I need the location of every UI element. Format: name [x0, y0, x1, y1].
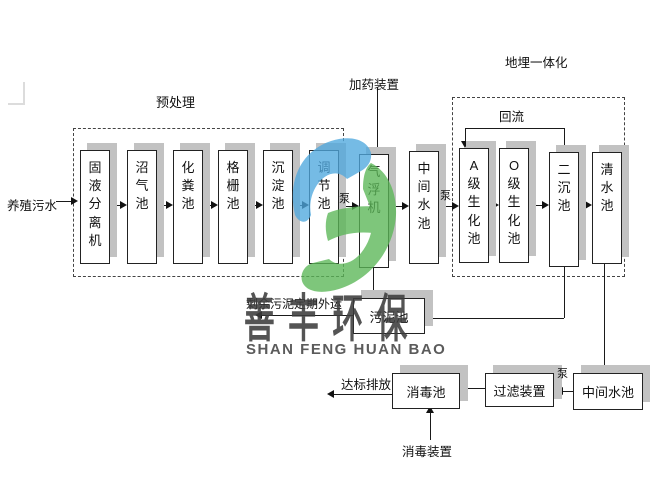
box-biogas-pool: 沼气池 [127, 150, 157, 264]
box-label: 过滤装置 [493, 381, 545, 400]
arrow-head [585, 201, 592, 209]
flow-line [467, 388, 485, 389]
box-label: 沉淀池 [271, 159, 286, 214]
box-o-level-bio-pool: O级生化池 [499, 148, 529, 263]
arrow-head [492, 201, 499, 209]
box-septic-pool: 化粪池 [173, 150, 203, 264]
flow-line [604, 263, 605, 366]
arrow-head [556, 387, 563, 395]
flow-line [338, 206, 352, 207]
box-label: 固液分离机 [88, 159, 103, 250]
disinfection-device-label: 消毒装置 [402, 441, 452, 460]
box-label: 中间水池 [417, 160, 432, 233]
arrow-head [600, 366, 608, 373]
box-label: A级生化池 [467, 157, 482, 248]
flow-line [438, 206, 452, 207]
flow-line [564, 266, 565, 318]
arrow-head [327, 390, 334, 398]
flow-line [56, 201, 71, 202]
box-label: 污泥池 [369, 307, 408, 326]
box-grille-pool: 格栅池 [218, 150, 248, 264]
pump-label-3: 泵 [557, 365, 568, 381]
buried-integration-label: 地埋一体化 [505, 52, 568, 71]
flow-line [563, 391, 573, 392]
flow-line [430, 413, 431, 440]
box-label: 清水池 [600, 161, 615, 216]
arrow-head [402, 202, 409, 210]
box-regulating-pool: 调节池 [309, 150, 339, 264]
box-air-flotation-machine: 气浮机 [359, 154, 389, 268]
flow-line [388, 206, 402, 207]
arrow-head [71, 197, 78, 205]
sludge-note-label: 剩余污泥定期外运 [246, 295, 342, 312]
arrow-head [255, 311, 262, 319]
flow-line [528, 205, 542, 206]
flow-line [564, 128, 565, 152]
flow-line [373, 267, 374, 291]
flow-line [202, 205, 211, 206]
flow-line [262, 315, 353, 316]
pump-label-1: 泵 [339, 190, 350, 206]
box-label: O级生化池 [507, 157, 522, 248]
pump-label-2: 泵 [440, 187, 451, 203]
arrow-head [120, 201, 127, 209]
box-solid-liquid-separator: 固液分离机 [80, 150, 110, 264]
box-label: 化粪池 [181, 159, 196, 214]
watermark-en-text: SHAN FENG HUAN BAO [246, 341, 446, 358]
box-label: 二沉池 [557, 161, 572, 216]
pretreatment-label: 预处理 [156, 92, 195, 111]
flow-line [377, 88, 378, 147]
box-label: 调节池 [317, 159, 332, 214]
box-disinfection-pool: 消毒池 [392, 373, 460, 409]
box-intermediate-pool-2: 中间水池 [573, 373, 643, 410]
flow-line [465, 128, 565, 129]
box-filter-device: 过滤装置 [485, 373, 554, 407]
box-clear-water-pool: 清水池 [592, 152, 622, 264]
dosing-device-label: 加药装置 [349, 74, 399, 93]
flow-line [334, 394, 392, 395]
box-secondary-sedimentation-pool: 二沉池 [549, 152, 579, 267]
arrow-head [166, 201, 173, 209]
arrow-head [373, 147, 381, 154]
box-label: 沼气池 [135, 159, 150, 214]
arrow-head [211, 201, 218, 209]
arrow-head [452, 202, 459, 210]
box-label: 格栅池 [226, 159, 241, 214]
arrow-head [461, 141, 469, 148]
arrow-head [352, 202, 359, 210]
box-intermediate-pool-1: 中间水池 [409, 151, 439, 264]
arrow-head [425, 314, 432, 322]
flow-line [156, 205, 166, 206]
discharge-label: 达标排放 [341, 374, 391, 393]
arrow-head [460, 384, 467, 392]
reflux-label: 回流 [499, 106, 524, 125]
influent-label: 养殖污水 [7, 195, 57, 214]
flow-line [292, 205, 302, 206]
box-a-level-bio-pool: A级生化池 [459, 148, 489, 263]
box-sedimentation-pool: 沉淀池 [263, 150, 293, 264]
box-sludge-pool: 污泥池 [353, 298, 425, 334]
box-label: 中间水池 [582, 382, 634, 401]
box-label: 气浮机 [367, 163, 382, 218]
page-corner-mark [23, 82, 25, 104]
arrow-head [369, 291, 377, 298]
flow-line [247, 205, 256, 206]
flow-line [465, 129, 466, 141]
arrow-head [256, 201, 263, 209]
flow-line [578, 205, 585, 206]
flow-line [432, 318, 564, 319]
page-corner-mark [8, 103, 25, 105]
box-label: 消毒池 [406, 382, 445, 401]
arrow-head [302, 201, 309, 209]
arrow-head [542, 201, 549, 209]
flow-diagram-page: 养殖污水 预处理 固液分离机 沼气池 化粪池 格栅池 沉淀池 调节池 气浮机 中… [0, 0, 650, 500]
